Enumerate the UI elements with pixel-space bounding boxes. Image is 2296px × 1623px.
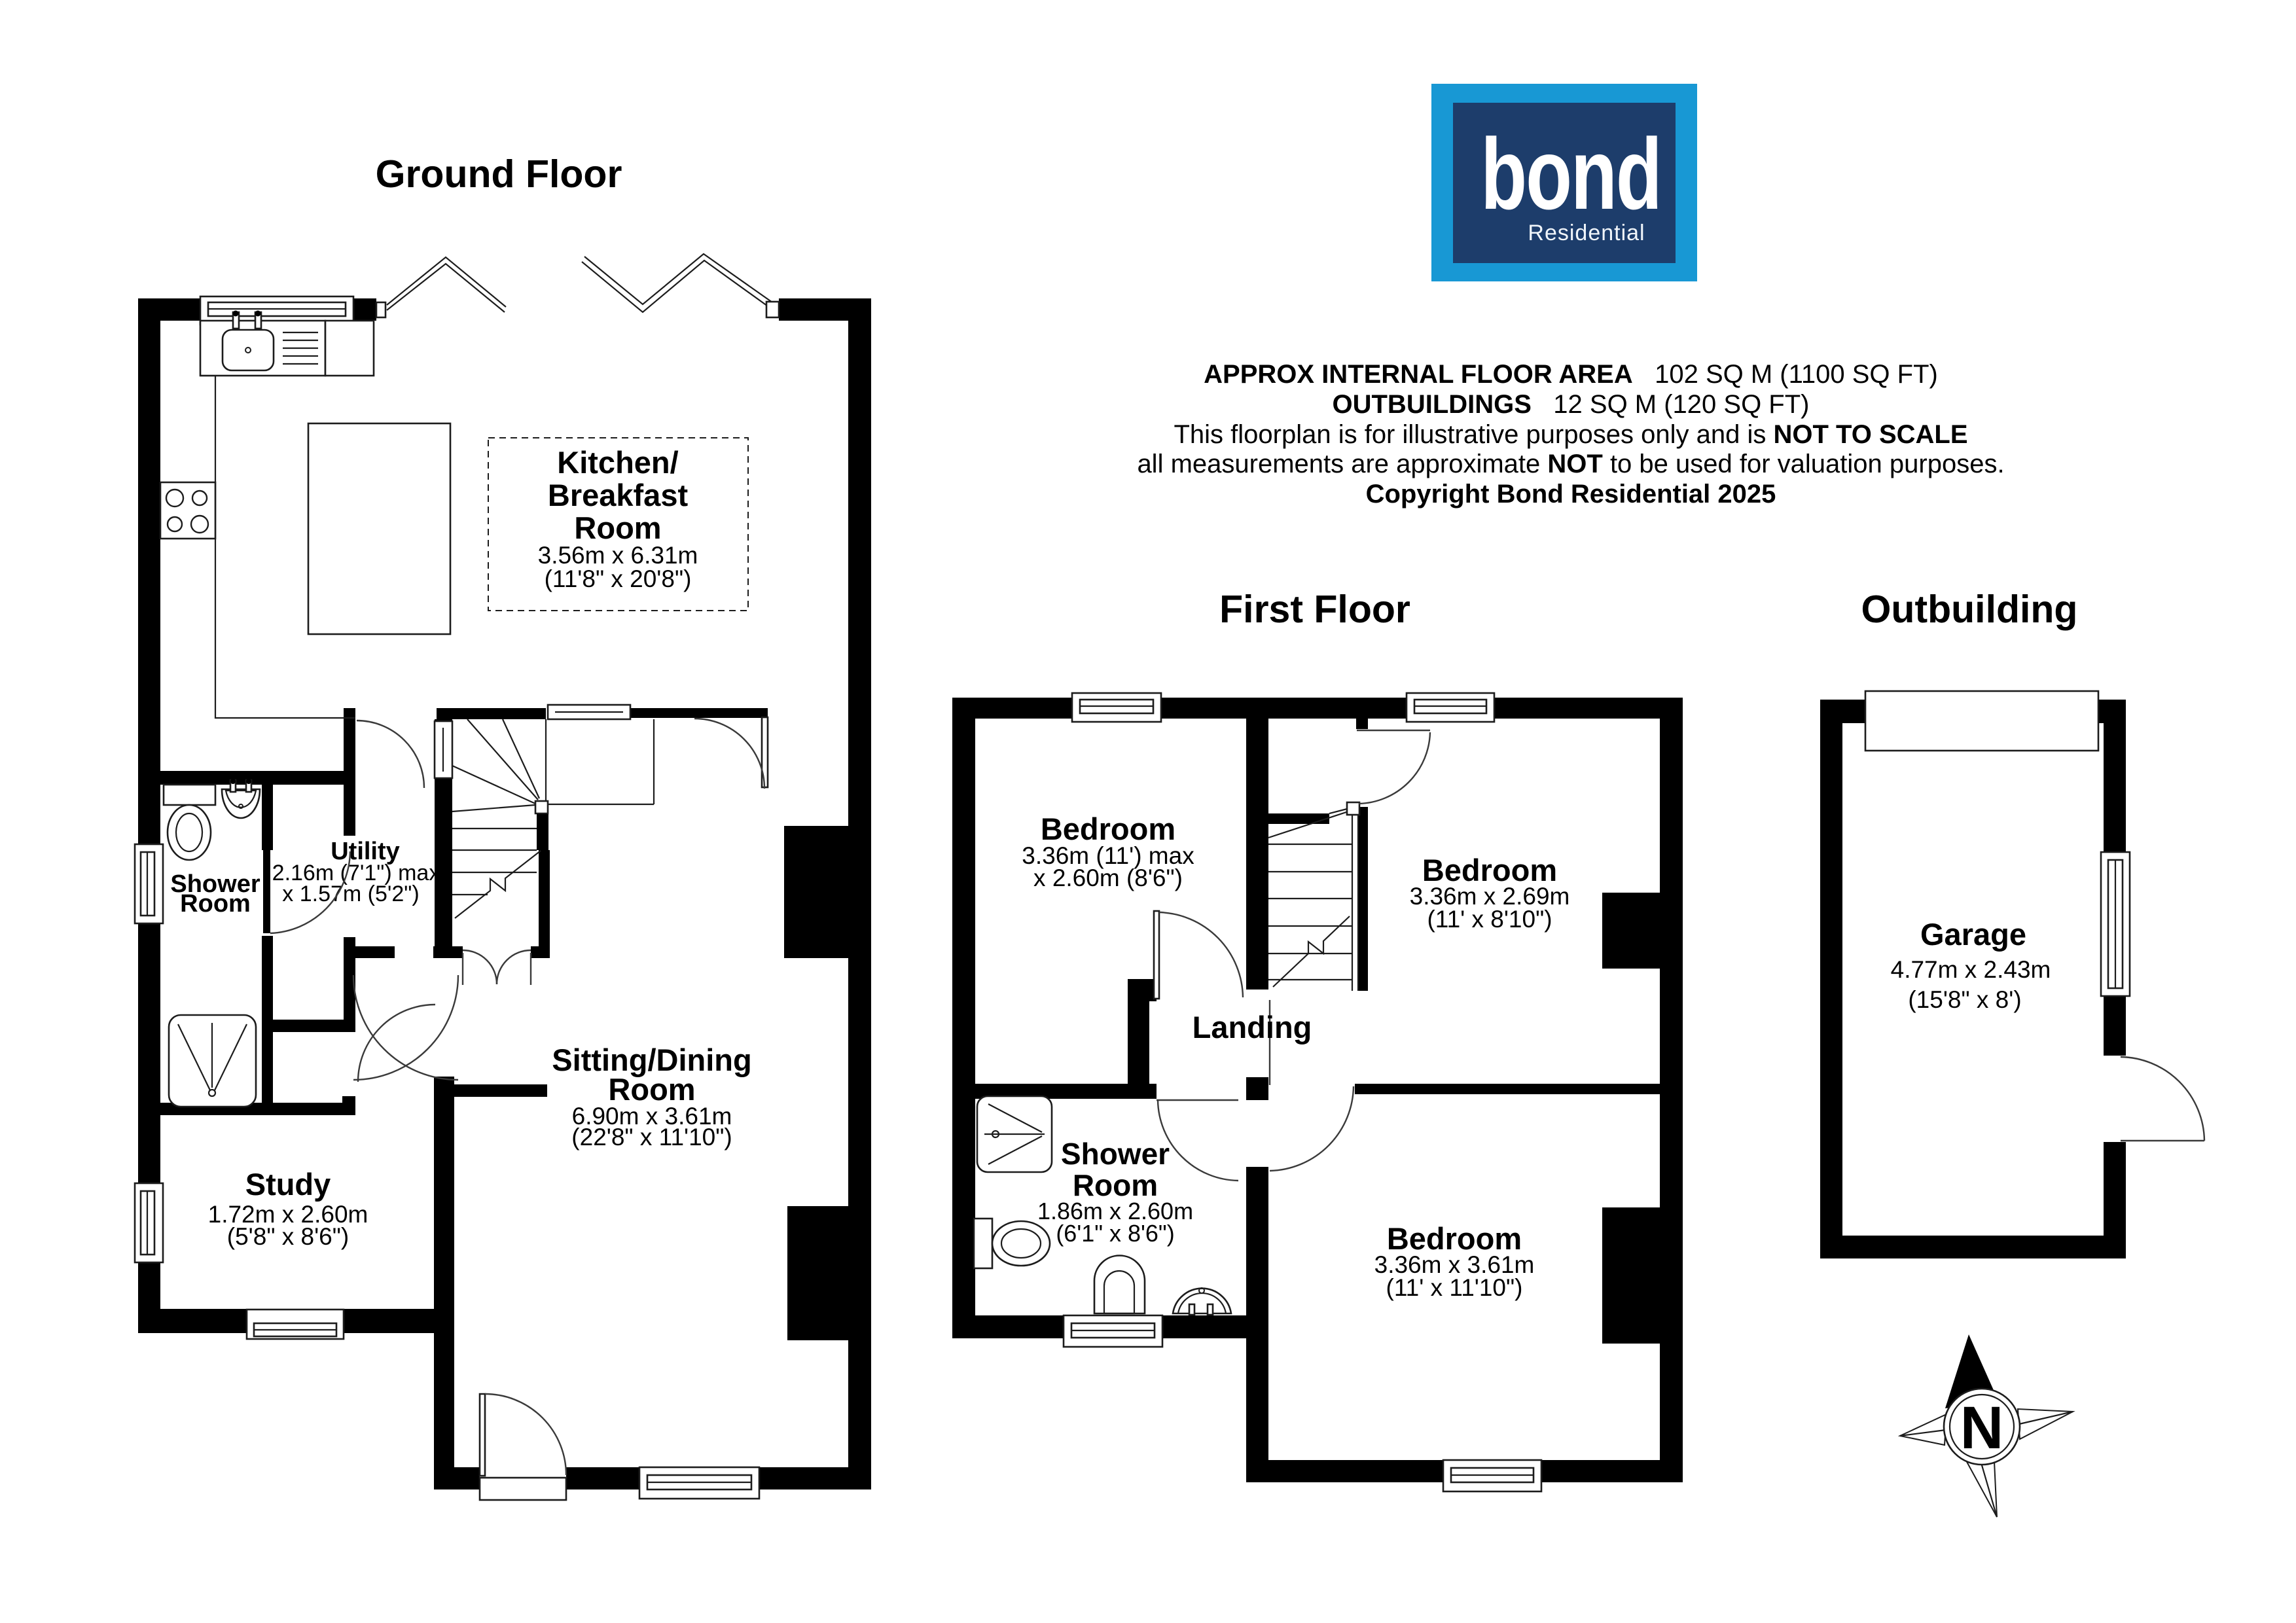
- svg-text:(11'8" x 20'8"): (11'8" x 20'8"): [545, 565, 692, 592]
- svg-text:(22'8" x 11'10"): (22'8" x 11'10"): [571, 1124, 732, 1150]
- svg-text:OUTBUILDINGS 12 SQ M (120 SQ: OUTBUILDINGS 12 SQ M (120 SQ FT): [1333, 390, 1810, 419]
- svg-text:Bedroom: Bedroom: [1041, 811, 1175, 846]
- svg-text:Room: Room: [574, 510, 661, 545]
- svg-text:Residential: Residential: [1528, 221, 1645, 245]
- svg-text:This floorplan is for illustra: This floorplan is for illustrative purpo…: [1174, 420, 1967, 449]
- svg-text:(11' x 8'10"): (11' x 8'10"): [1427, 906, 1552, 933]
- svg-text:(6'1" x 8'6"): (6'1" x 8'6"): [1056, 1220, 1174, 1247]
- svg-text:Kitchen/: Kitchen/: [557, 445, 678, 480]
- svg-text:(11' x 11'10"): (11' x 11'10"): [1386, 1274, 1523, 1301]
- svg-text:Ground Floor: Ground Floor: [376, 152, 622, 196]
- svg-text:Copyright Bond Residential 202: Copyright Bond Residential 2025: [1366, 480, 1776, 508]
- svg-text:all measurements are approxima: all measurements are approximate NOT to …: [1137, 450, 2004, 478]
- svg-text:Room: Room: [180, 890, 251, 918]
- svg-text:N: N: [1960, 1395, 2003, 1461]
- svg-text:First Floor: First Floor: [1219, 588, 1410, 631]
- svg-text:4.77m x 2.43m: 4.77m x 2.43m: [1891, 956, 2051, 983]
- svg-text:3.56m x 6.31m: 3.56m x 6.31m: [538, 542, 698, 569]
- svg-text:Study: Study: [245, 1167, 331, 1202]
- svg-text:bond: bond: [1480, 117, 1660, 230]
- svg-text:Landing: Landing: [1193, 1010, 1312, 1044]
- svg-text:Outbuilding: Outbuilding: [1861, 588, 2078, 631]
- svg-text:(5'8" x 8'6"): (5'8" x 8'6"): [227, 1223, 349, 1250]
- svg-text:Breakfast: Breakfast: [548, 478, 689, 512]
- svg-text:Room: Room: [608, 1072, 695, 1107]
- svg-text:x 1.57m (5'2"): x 1.57m (5'2"): [282, 882, 419, 906]
- svg-text:x 2.60m (8'6"): x 2.60m (8'6"): [1033, 865, 1183, 891]
- svg-text:APPROX INTERNAL FLOOR AREA 1: APPROX INTERNAL FLOOR AREA 102 SQ M (110…: [1204, 360, 1938, 389]
- svg-text:(15'8" x 8'): (15'8" x 8'): [1908, 986, 2021, 1013]
- svg-text:Garage: Garage: [1920, 917, 2026, 952]
- svg-text:Shower: Shower: [1061, 1137, 1170, 1171]
